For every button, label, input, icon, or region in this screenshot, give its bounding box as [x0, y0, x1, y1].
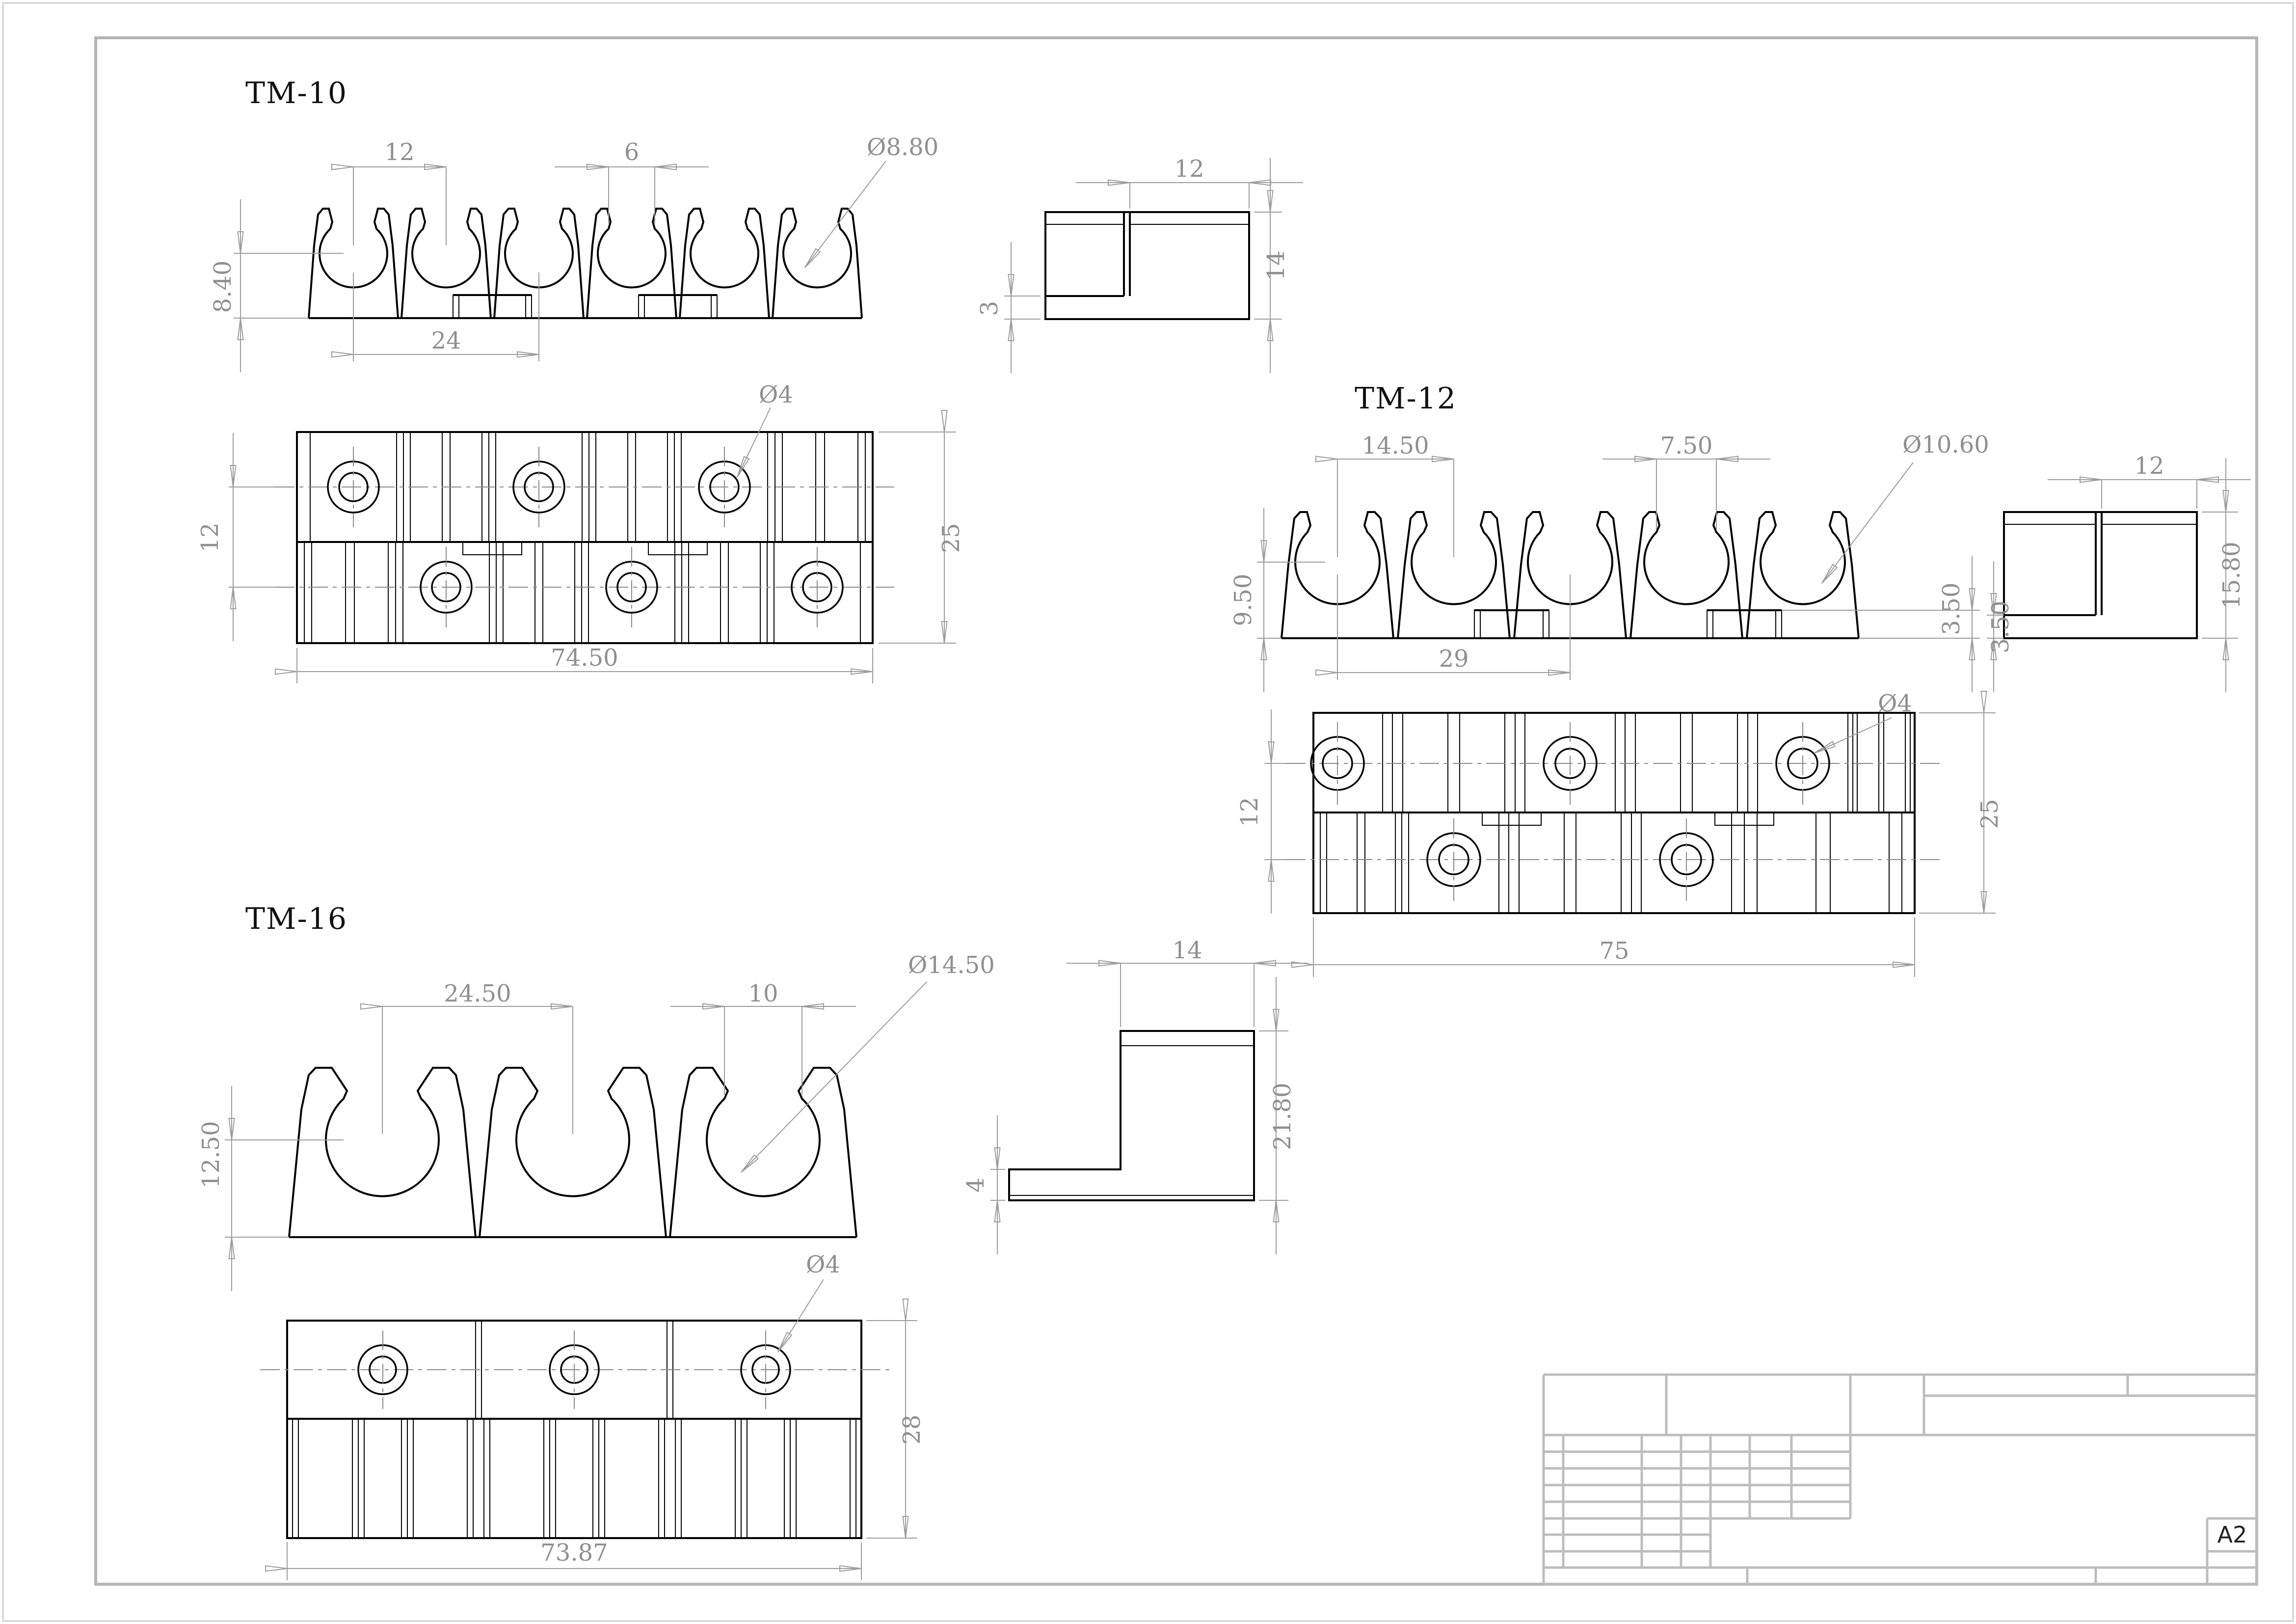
dim-tm10-front-mouth: 6 — [624, 138, 640, 166]
dim-tm16-side-width: 14 — [1172, 937, 1202, 964]
drawing-sheet: TM-10 TM-12 TM-16 12 6 Ø8.80 8.40 24 12 … — [0, 0, 2296, 1624]
dim-tm16-side-height: 21.80 — [1269, 1083, 1296, 1150]
dim-tm16-center-height: 12.50 — [197, 1121, 225, 1188]
dim-tm10-plan-row-offset: 12 — [196, 522, 224, 552]
part-title-tm16: TM-16 — [245, 902, 347, 936]
dim-tm16-plan-hole: Ø4 — [806, 1251, 840, 1278]
dim-tm10-front-pitch: 12 — [384, 138, 414, 166]
dim-tm12-side-height: 15.80 — [2218, 541, 2245, 609]
dim-tm16-front-mouth: 10 — [748, 980, 778, 1007]
part-title-tm10: TM-10 — [245, 76, 347, 110]
dim-tm12-center-height: 9.50 — [1229, 574, 1257, 626]
page-background — [0, 0, 2296, 1624]
dim-tm10-plan-length: 74.50 — [551, 644, 618, 672]
dim-tm12-plan-depth: 25 — [1976, 799, 2003, 829]
dim-tm16-bore-label: Ø14.50 — [908, 951, 995, 979]
dim-tm10-plan-depth: 25 — [937, 523, 965, 553]
dim-tm12-double-pitch: 29 — [1439, 645, 1468, 673]
dim-tm12-front-pitch: 14.50 — [1362, 432, 1429, 460]
dim-tm10-bore-label: Ø8.80 — [867, 134, 938, 161]
sheet-format-label: A2 — [2217, 1521, 2247, 1548]
dim-tm10-plan-hole: Ø4 — [759, 381, 793, 408]
dim-tm16-plan-depth: 28 — [898, 1414, 926, 1444]
dim-tm12-bore-label: Ø10.60 — [1902, 431, 1989, 459]
dim-tm10-side-width: 12 — [1174, 155, 1204, 183]
dim-tm12-front-mouth: 7.50 — [1660, 432, 1713, 460]
dim-tm16-plan-length: 73.87 — [540, 1539, 608, 1567]
dim-tm16-front-pitch: 24.50 — [444, 980, 511, 1007]
dim-tm16-side-base: 4 — [962, 1178, 989, 1193]
dim-tm12-side-base: 3.50 — [1987, 601, 2014, 653]
dim-tm12-front-base: 3.50 — [1938, 583, 1965, 635]
dim-tm12-plan-hole: Ø4 — [1878, 690, 1912, 717]
dim-tm10-center-height: 8.40 — [209, 261, 237, 313]
dim-tm12-plan-row-offset: 12 — [1236, 797, 1263, 827]
dim-tm12-side-width: 12 — [2134, 452, 2164, 480]
cad-canvas: TM-10 TM-12 TM-16 12 6 Ø8.80 8.40 24 12 … — [0, 0, 2296, 1624]
dim-tm10-side-height: 14 — [1262, 250, 1290, 280]
dim-tm10-double-pitch: 24 — [431, 327, 461, 354]
dim-tm10-side-base: 3 — [976, 301, 1003, 316]
part-title-tm12: TM-12 — [1355, 381, 1457, 416]
dim-tm12-plan-length: 75 — [1599, 937, 1629, 965]
